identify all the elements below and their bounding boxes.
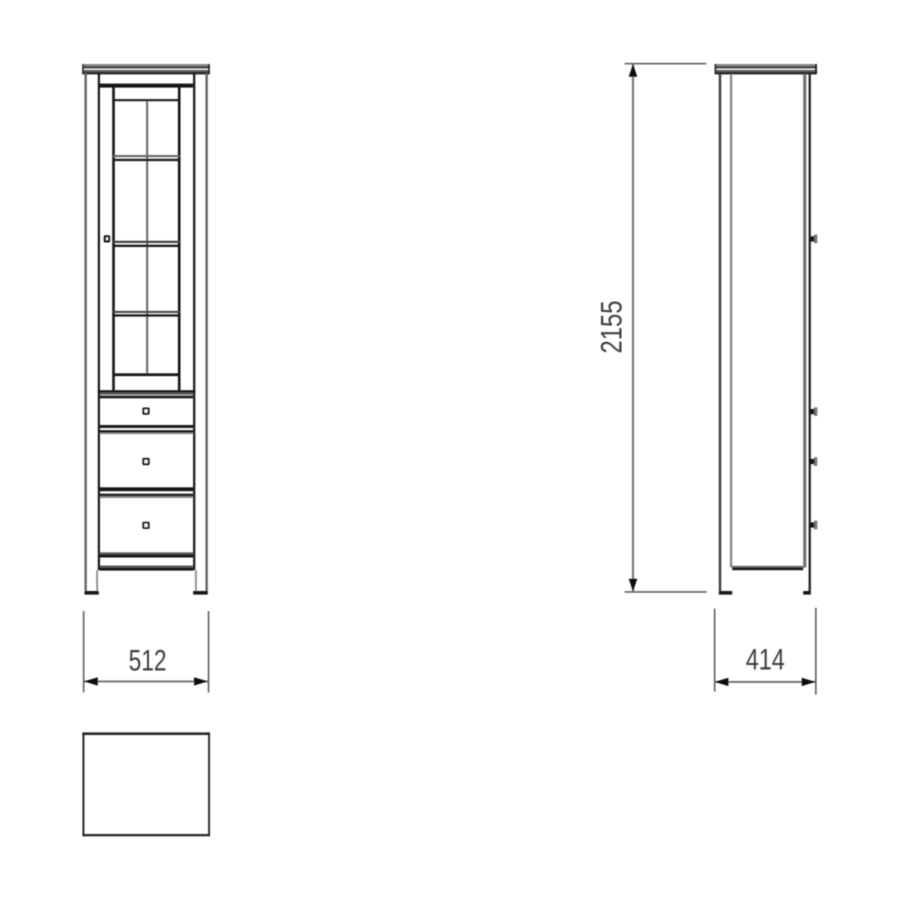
svg-text:414: 414	[746, 643, 785, 676]
svg-text:2155: 2155	[595, 301, 628, 354]
svg-text:512: 512	[129, 644, 167, 677]
